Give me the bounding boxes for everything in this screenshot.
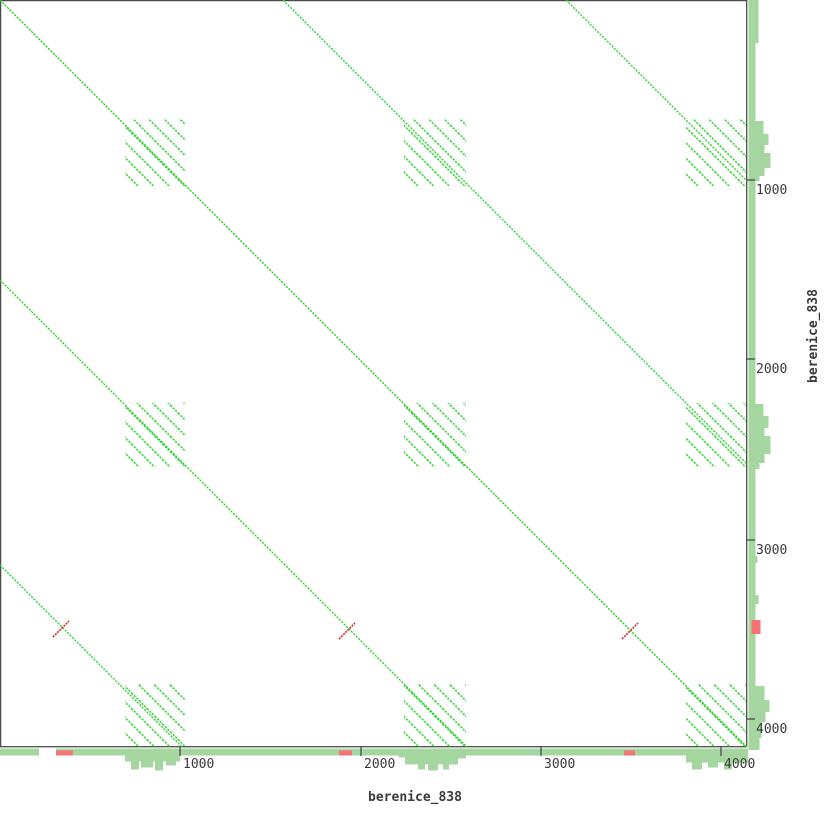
y-tick-label: 3000 <box>756 543 787 558</box>
histogram-bar-right <box>749 168 765 176</box>
histogram-bar-right <box>749 416 769 428</box>
histogram-bar-bottom <box>428 749 438 771</box>
dotplot-page: 10002000300040001000200030004000 berenic… <box>0 0 830 830</box>
histogram-bar-right <box>749 145 765 153</box>
histogram-bar-right <box>749 153 771 168</box>
histogram-bar-bottom <box>458 749 466 759</box>
histogram-bar-right <box>749 700 770 712</box>
histogram-red-segment-bottom <box>56 751 73 756</box>
histogram-bar-bottom <box>166 749 176 766</box>
histogram-bar-right <box>749 463 760 469</box>
histogram-bar-right <box>749 134 769 145</box>
y-axis-sequence-label: berenice_838 <box>806 289 821 383</box>
y-tick-label: 4000 <box>756 722 787 737</box>
histogram-bar-right <box>749 121 764 134</box>
histogram-bar-bottom <box>418 749 425 770</box>
y-tick-label: 1000 <box>756 183 787 198</box>
x-tick-label: 1000 <box>183 757 214 772</box>
histogram-bar-bottom <box>692 749 702 770</box>
histogram-bar-right <box>749 428 765 436</box>
repeat-block <box>686 684 746 747</box>
histogram-red-segment-bottom <box>624 751 635 756</box>
generated-plot-layer: 10002000300040001000200030004000 <box>0 0 787 772</box>
x-tick-label: 3000 <box>544 757 575 772</box>
histogram-bar-bottom <box>155 749 163 771</box>
histogram-bar-right <box>749 595 759 604</box>
x-axis-sequence-label: berenice_838 <box>368 790 462 805</box>
histogram-bar-right <box>749 436 771 454</box>
histogram-bar-bottom <box>443 749 449 770</box>
histogram-red-segment-bottom <box>339 751 352 756</box>
y-tick-label: 2000 <box>756 362 787 377</box>
repeat-block <box>686 119 746 186</box>
histogram-bottom-gap <box>39 748 56 756</box>
repeat-block <box>125 684 185 747</box>
histogram-bar-bottom <box>131 749 139 770</box>
histogram-bar-bottom <box>399 749 405 758</box>
histogram-bar-right <box>749 404 764 416</box>
histogram-bar-right <box>749 712 766 722</box>
dotplot-canvas: 10002000300040001000200030004000 berenic… <box>0 0 830 830</box>
histogram-bar-right <box>749 454 765 463</box>
x-tick-label: 2000 <box>364 757 395 772</box>
histogram-bar-right <box>749 686 765 700</box>
histogram-bar-right <box>749 0 759 43</box>
histogram-red-segment-right <box>752 620 761 634</box>
x-tick-label: 4000 <box>724 757 755 772</box>
histogram-bar-bottom <box>141 749 153 768</box>
histogram-right-base <box>749 0 756 746</box>
histogram-bar-bottom <box>708 749 718 768</box>
histogram-bar-right <box>749 738 760 750</box>
